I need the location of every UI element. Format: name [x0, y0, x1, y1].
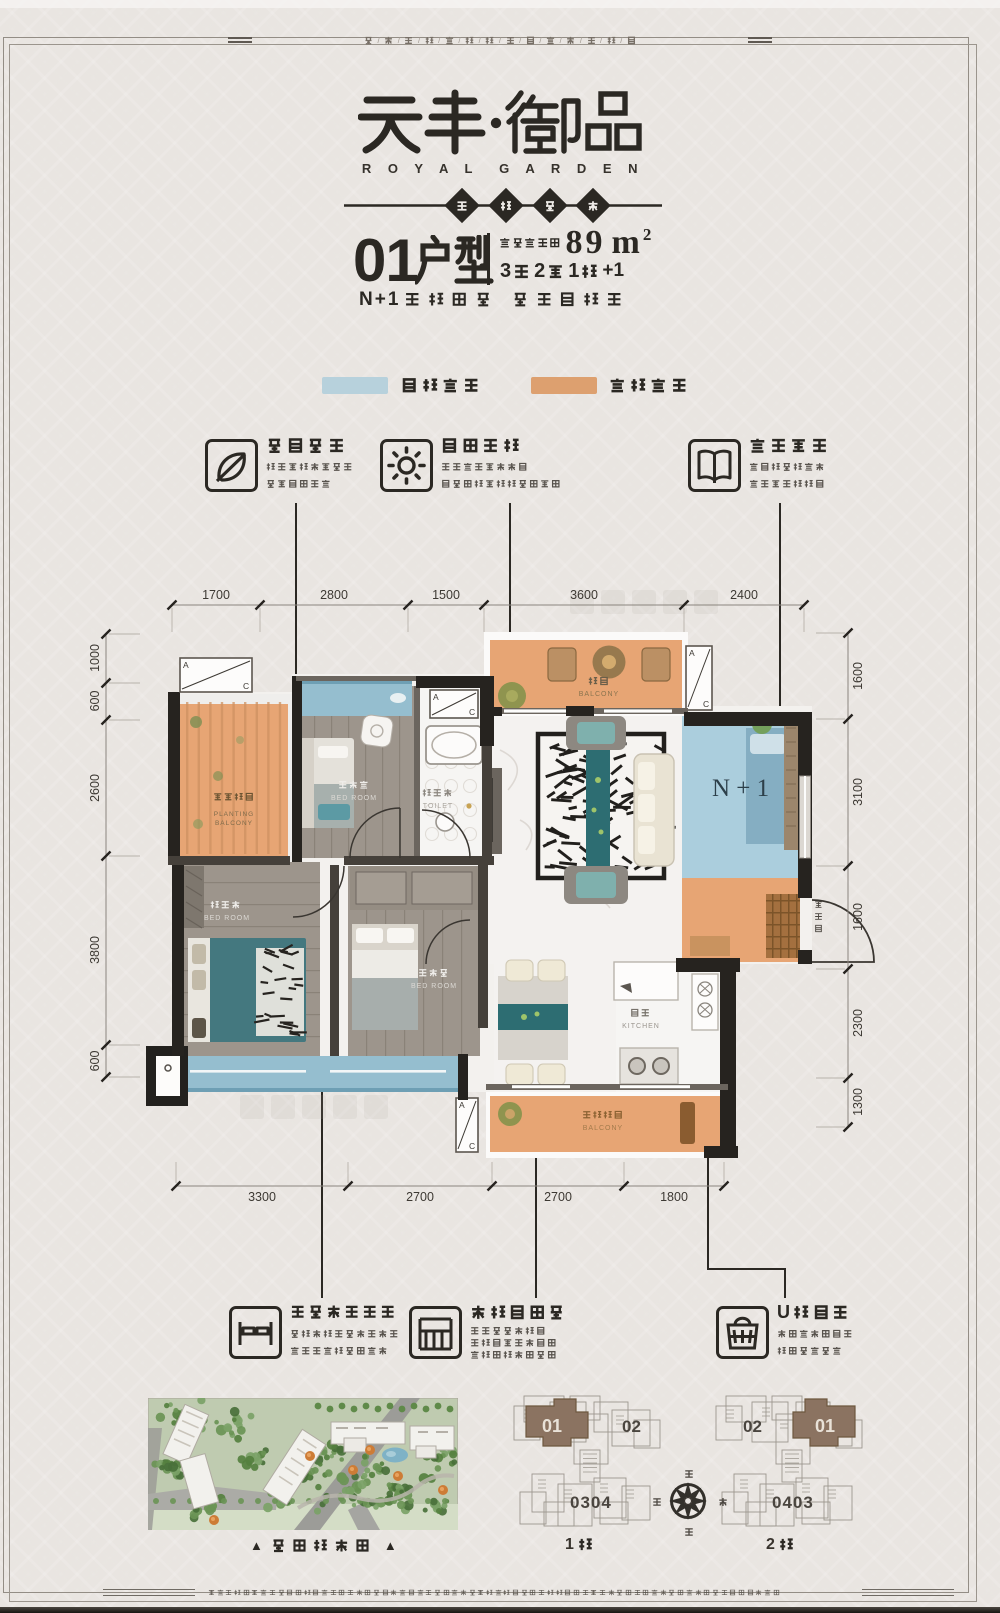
- svg-text:600: 600: [88, 1051, 102, 1072]
- svg-text:C: C: [469, 1141, 475, 1151]
- svg-text:BED ROOM: BED ROOM: [411, 983, 457, 990]
- svg-text:3100: 3100: [851, 778, 865, 806]
- svg-text:A: A: [183, 660, 189, 670]
- svg-text:1000: 1000: [88, 644, 102, 672]
- svg-text:1800: 1800: [660, 1190, 688, 1204]
- svg-text:2300: 2300: [851, 1009, 865, 1037]
- svg-text:01: 01: [542, 1416, 562, 1436]
- svg-text:1600: 1600: [851, 903, 865, 931]
- svg-text:02: 02: [743, 1417, 762, 1436]
- svg-text:BALCONY: BALCONY: [215, 820, 253, 827]
- svg-text:1700: 1700: [202, 588, 230, 602]
- svg-text:3600: 3600: [570, 588, 598, 602]
- svg-text:600: 600: [88, 691, 102, 712]
- svg-text:A: A: [433, 692, 439, 702]
- svg-text:1600: 1600: [851, 662, 865, 690]
- svg-text:2700: 2700: [406, 1190, 434, 1204]
- svg-text:BED ROOM: BED ROOM: [331, 795, 377, 802]
- svg-text:0304: 0304: [570, 1493, 612, 1512]
- svg-text:KITCHEN: KITCHEN: [622, 1023, 660, 1030]
- svg-text:01: 01: [815, 1416, 835, 1436]
- svg-text:3800: 3800: [88, 936, 102, 964]
- svg-text:1300: 1300: [851, 1088, 865, 1116]
- svg-text:0403: 0403: [772, 1493, 814, 1512]
- svg-text:1500: 1500: [432, 588, 460, 602]
- svg-text:2600: 2600: [88, 774, 102, 802]
- svg-text:C: C: [703, 699, 709, 709]
- svg-text:BED ROOM: BED ROOM: [204, 915, 250, 922]
- svg-text:2400: 2400: [730, 588, 758, 602]
- svg-text:PLANTING: PLANTING: [214, 811, 255, 818]
- svg-text:2700: 2700: [544, 1190, 572, 1204]
- svg-text:02: 02: [622, 1417, 641, 1436]
- svg-text:2800: 2800: [320, 588, 348, 602]
- svg-text:N + 1: N + 1: [712, 775, 769, 802]
- svg-text:3300: 3300: [248, 1190, 276, 1204]
- svg-text:C: C: [243, 681, 249, 691]
- svg-text:BALCONY: BALCONY: [583, 1125, 623, 1132]
- svg-text:C: C: [469, 707, 475, 717]
- svg-text:BALCONY: BALCONY: [579, 691, 619, 698]
- svg-text:A: A: [459, 1100, 465, 1110]
- svg-text:TOILET: TOILET: [423, 803, 453, 810]
- svg-text:A: A: [689, 648, 695, 658]
